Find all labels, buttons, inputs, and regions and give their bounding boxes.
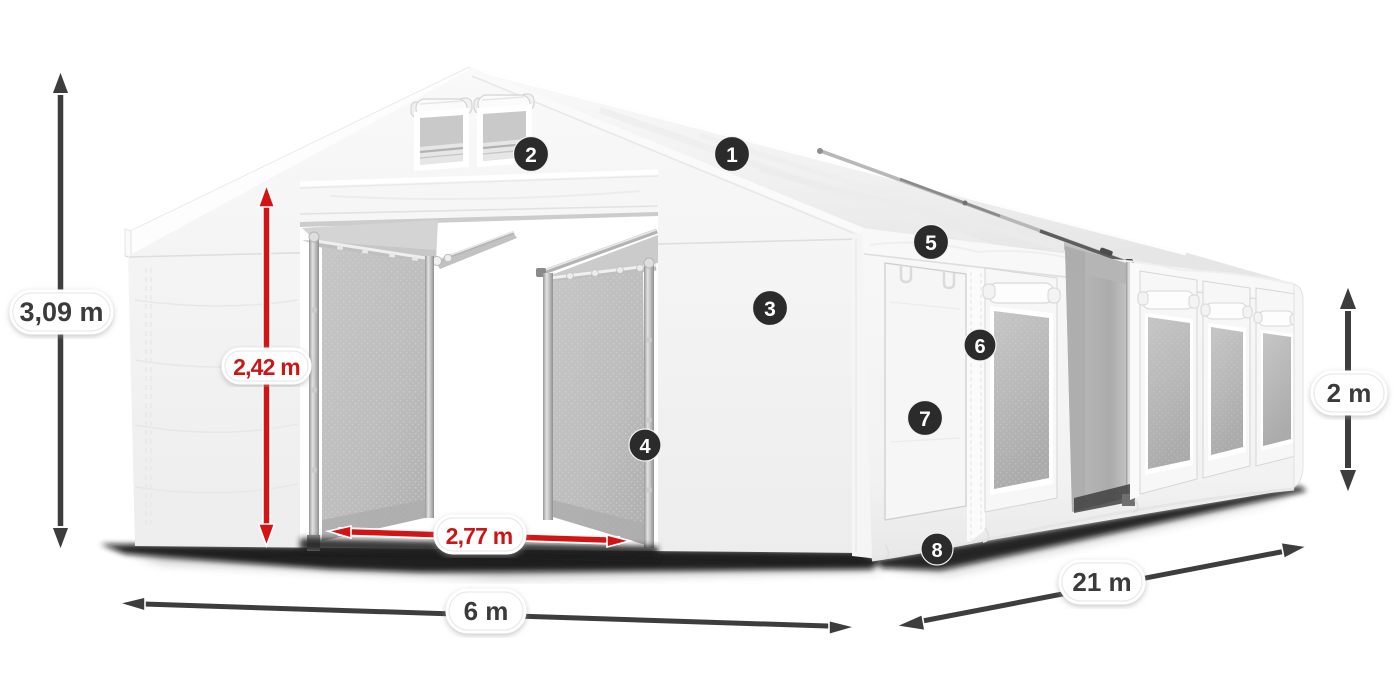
svg-text:6: 6 bbox=[974, 336, 985, 358]
svg-text:6 m: 6 m bbox=[464, 596, 509, 626]
svg-text:2: 2 bbox=[525, 144, 537, 167]
svg-text:2,42 m: 2,42 m bbox=[233, 354, 300, 380]
svg-text:2,77 m: 2,77 m bbox=[446, 523, 513, 549]
svg-text:1: 1 bbox=[726, 144, 738, 167]
svg-text:21 m: 21 m bbox=[1072, 567, 1131, 597]
svg-text:5: 5 bbox=[925, 232, 937, 255]
svg-text:3,09 m: 3,09 m bbox=[19, 297, 103, 327]
svg-text:4: 4 bbox=[639, 436, 651, 458]
svg-text:8: 8 bbox=[931, 540, 942, 562]
svg-text:3: 3 bbox=[764, 298, 776, 321]
svg-text:7: 7 bbox=[919, 408, 931, 431]
svg-text:2 m: 2 m bbox=[1327, 378, 1372, 408]
